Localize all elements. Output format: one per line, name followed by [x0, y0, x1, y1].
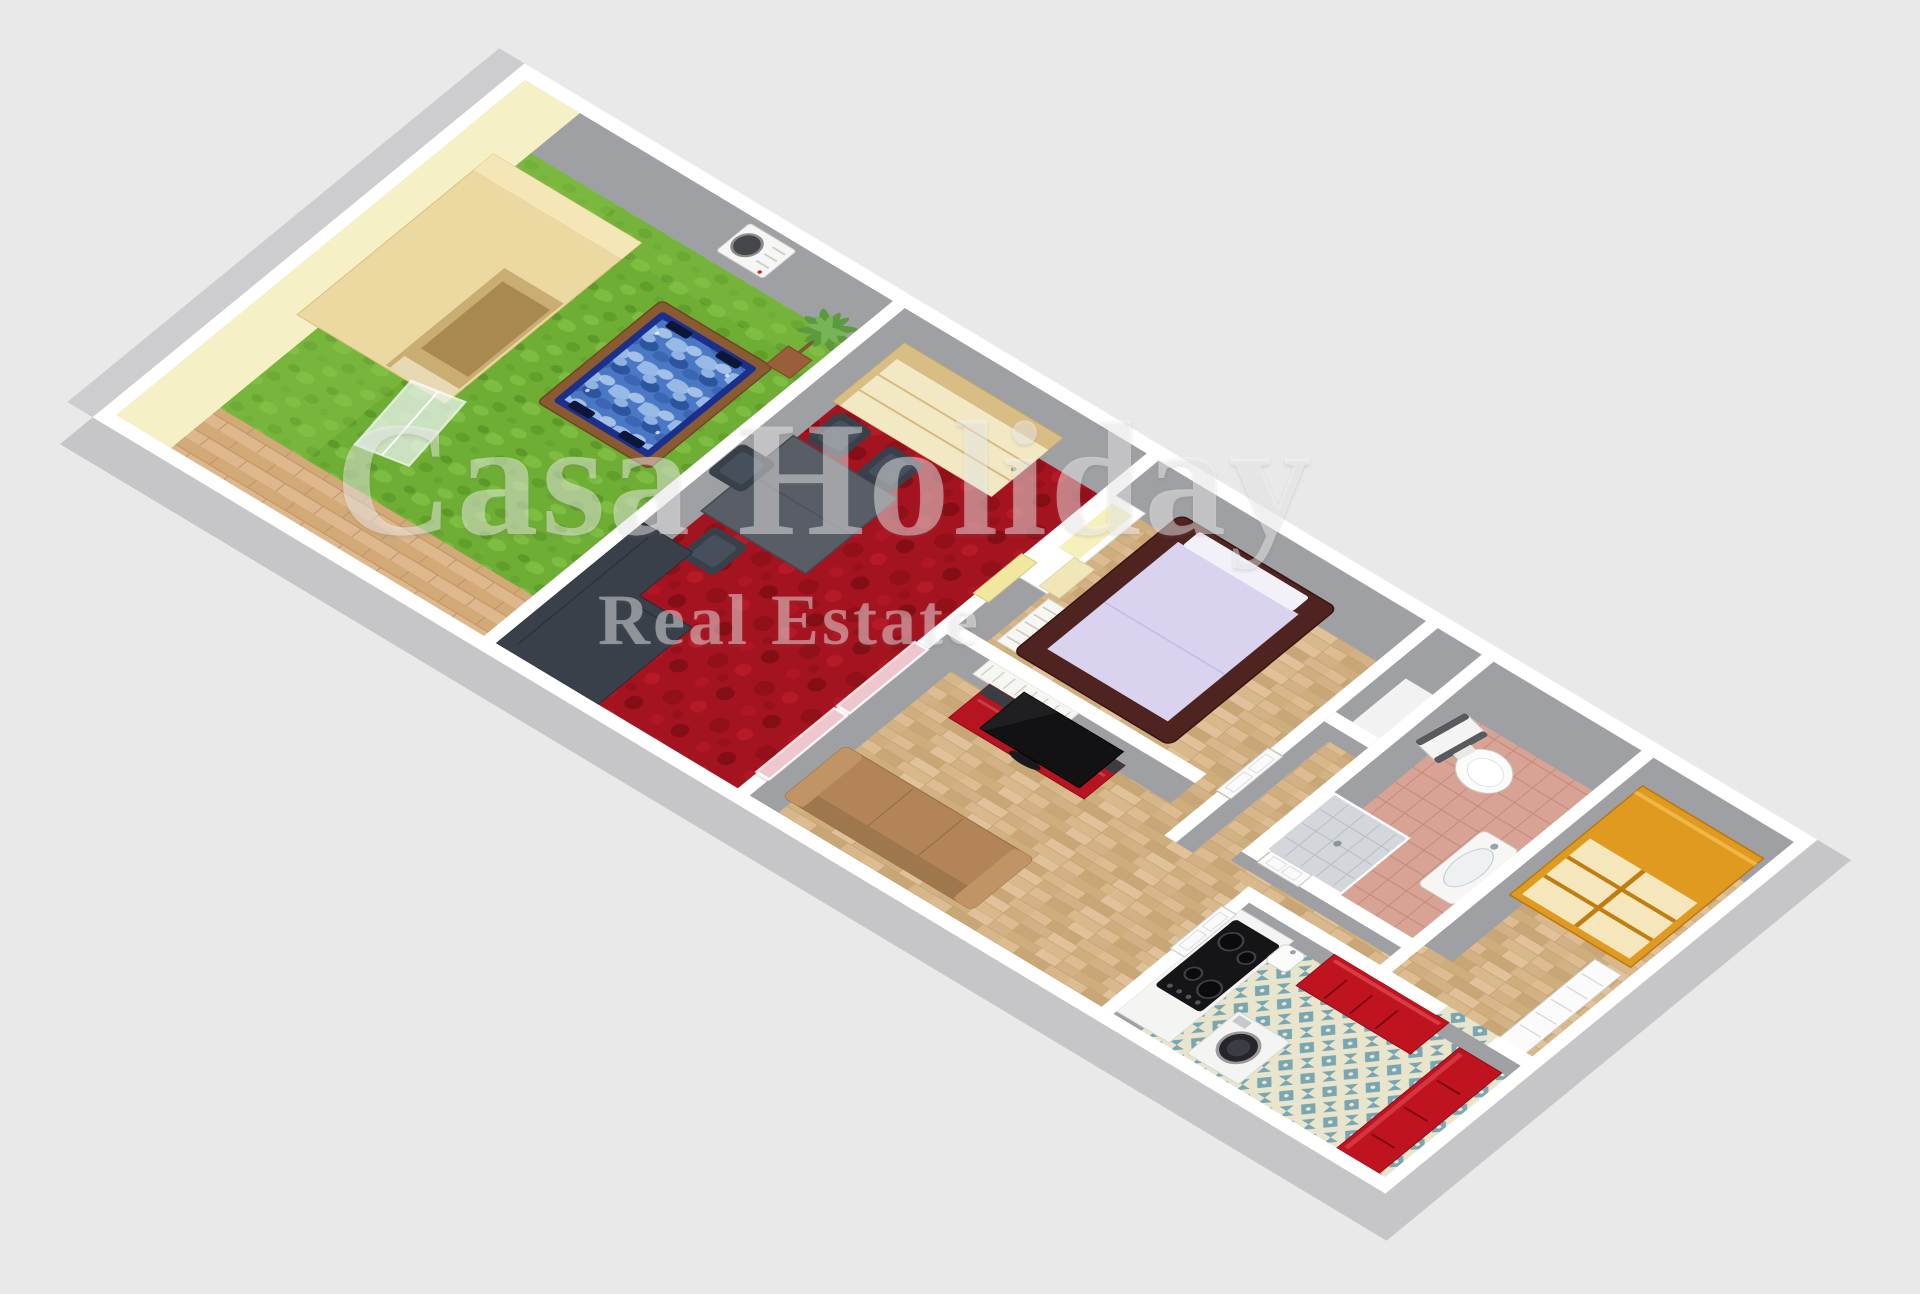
floorplan-page: Casa Holiday Real Estate: [0, 0, 1920, 1294]
floorplan-canvas: [0, 0, 1920, 1294]
